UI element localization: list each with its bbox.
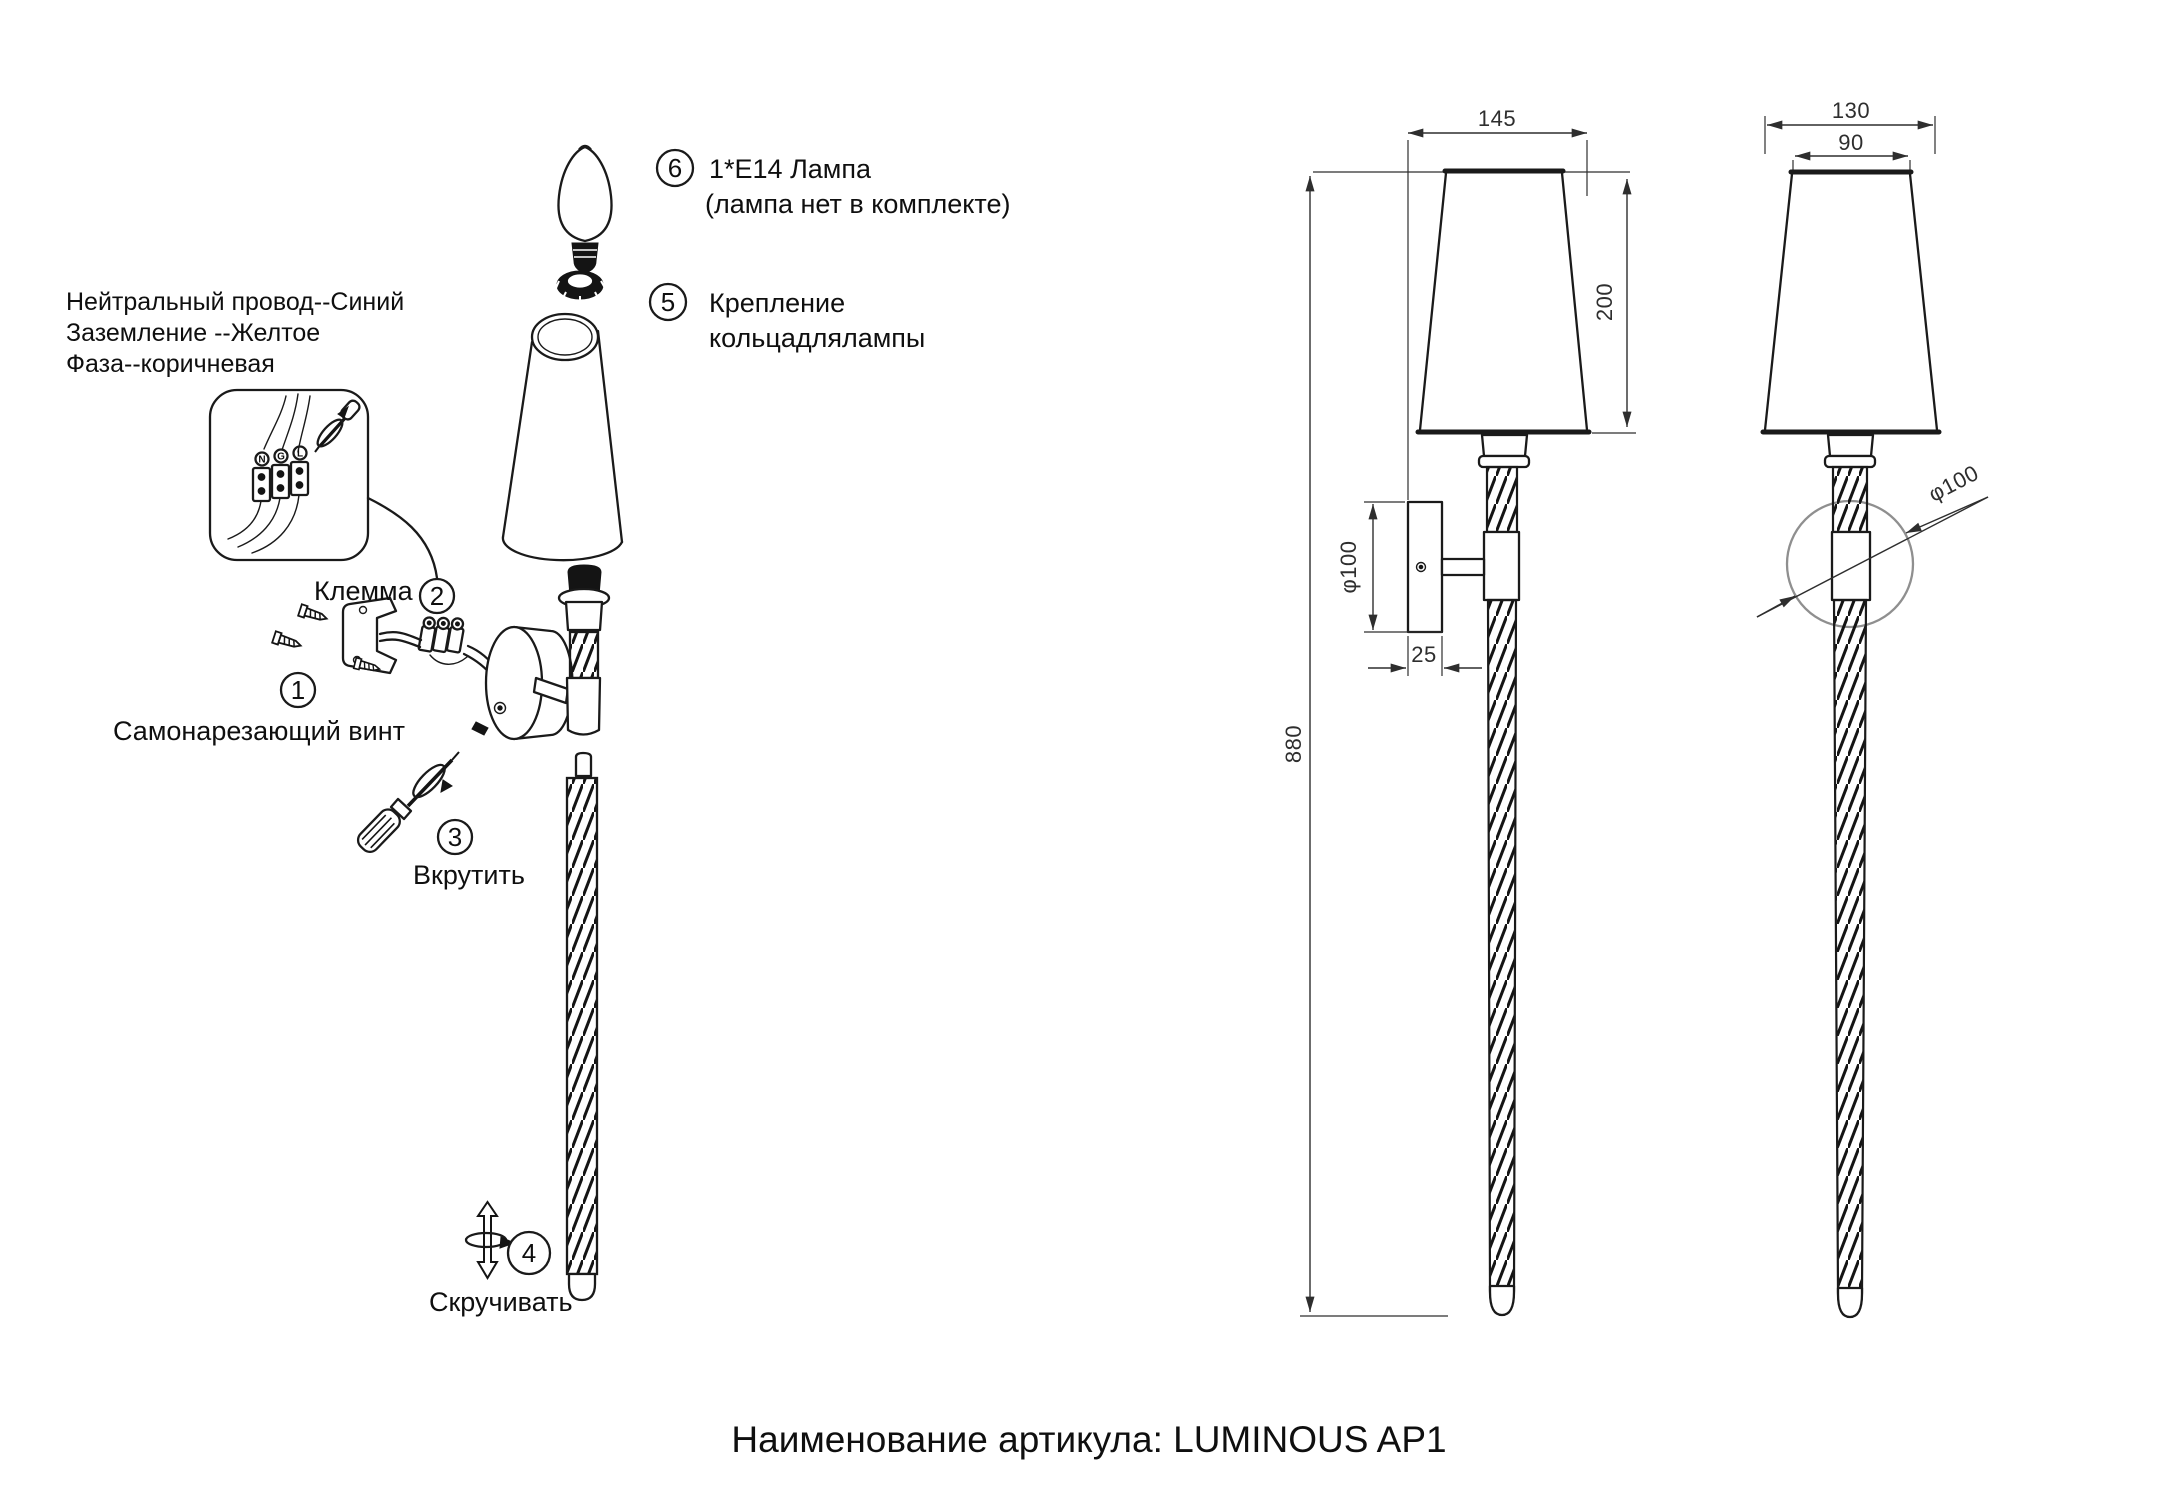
step-3-number: 3	[448, 822, 462, 852]
mounting-bracket-assembly	[272, 598, 497, 677]
step-5-number: 5	[661, 287, 675, 317]
diagram-canvas: N G L	[0, 0, 2174, 1500]
wall-plate-drawing	[472, 627, 572, 739]
terminal-label-l: L	[297, 449, 303, 460]
step-2-number: 2	[430, 581, 444, 611]
step-5-label-line1: Крепление	[709, 288, 845, 318]
step-3-label: Вкрутить	[413, 860, 525, 890]
step-4-number: 4	[522, 1238, 536, 1268]
sheet-title: Наименование артикула: LUMINOUS AP1	[731, 1419, 1446, 1460]
step-1-number: 1	[291, 675, 305, 705]
twisted-rod-drawing	[567, 753, 597, 1300]
dim-total-height: 880	[1281, 725, 1306, 763]
step-4-label: Скручивать	[429, 1287, 573, 1317]
side-view: 130 90 φ100	[1757, 98, 1988, 1317]
step-6-label-line2: (лампа нет в комплекте)	[705, 189, 1010, 219]
front-shade-drawing	[1418, 171, 1589, 432]
bulb-drawing	[558, 146, 611, 273]
lampshade-drawing	[503, 312, 622, 560]
wiring-note-line3: Фаза--коричневая	[66, 350, 275, 378]
wiring-note-line2: Заземление --Желтое	[66, 319, 320, 347]
ring-nut-drawing	[556, 271, 605, 302]
step-6-label-line1: 1*E14 Лампа	[709, 154, 872, 184]
dim-plate-diameter-front: φ100	[1336, 541, 1361, 594]
front-view: 880 145 200 φ100	[1281, 106, 1636, 1316]
terminal-label-g: G	[277, 452, 285, 463]
assembly-instruction-sheet: N G L	[0, 0, 2174, 1500]
wiring-detail-box: N G L	[210, 390, 437, 578]
terminal-label-n: N	[258, 455, 265, 466]
side-shade-drawing	[1763, 172, 1939, 432]
dim-shade-top-width: 90	[1838, 130, 1863, 155]
step-5-label-line2: кольцадлялампы	[709, 323, 925, 353]
exploded-view: N G L	[66, 146, 1010, 1318]
dim-plate-depth: 25	[1411, 642, 1436, 667]
step-2-label: Клемма	[314, 576, 414, 606]
step-1-label: Самонарезающий винт	[113, 716, 405, 746]
step-6-number: 6	[668, 153, 682, 183]
front-wallplate-drawing	[1408, 502, 1484, 632]
dim-shade-width: 145	[1478, 106, 1516, 131]
dim-shade-height: 200	[1592, 283, 1617, 321]
terminal-block-drawing	[418, 613, 465, 657]
wiring-note-line1: Нейтральный провод--Синий	[66, 288, 404, 316]
step-markers: 6 5 2 1 3 4	[281, 150, 693, 1274]
dim-shade-bottom-width: 130	[1832, 98, 1870, 123]
twist-arrow-icon	[466, 1202, 514, 1278]
dim-plate-diameter-side: φ100	[1924, 460, 1983, 507]
